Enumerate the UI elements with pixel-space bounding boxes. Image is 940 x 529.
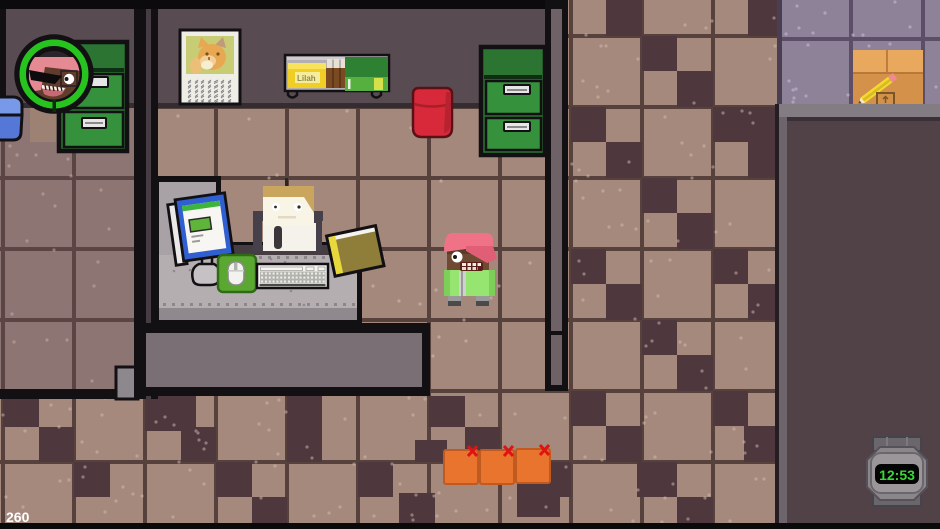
svg-text:260: 260 <box>6 509 30 525</box>
svg-text:Lilah: Lilah <box>297 74 316 83</box>
svg-text:12:53: 12:53 <box>879 467 915 483</box>
